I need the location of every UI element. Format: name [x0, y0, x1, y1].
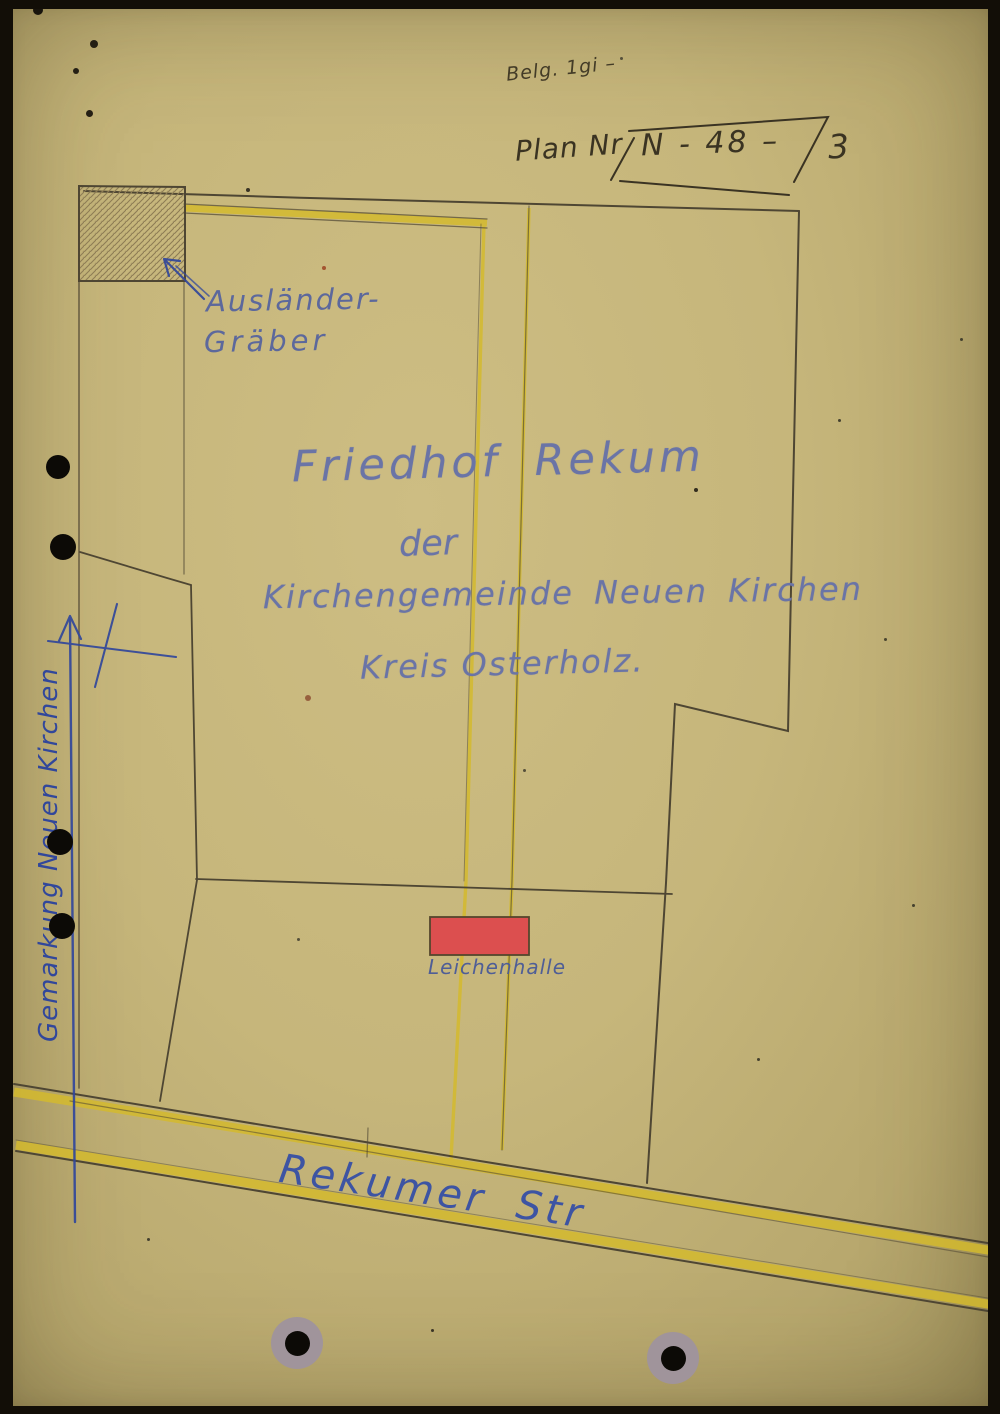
punch-hole	[50, 534, 76, 560]
scan-edge-top	[0, 0, 1000, 9]
scan-edge-left	[0, 0, 13, 1414]
paper-speck	[86, 110, 93, 117]
cemetery-boundary	[14, 186, 1000, 1313]
paper-speck	[912, 904, 915, 907]
paper-speck	[838, 419, 841, 422]
punch-hole	[49, 913, 75, 939]
plan-number-suffix: 3	[827, 126, 850, 166]
paper-speck	[431, 1329, 434, 1332]
paper-speck	[147, 1238, 150, 1241]
reinforced-punch-hole	[271, 1317, 323, 1369]
paper-speck	[73, 68, 79, 74]
punch-hole	[47, 829, 73, 855]
paper-speck	[322, 266, 326, 270]
plan-title-line4: Kreis Osterholz.	[360, 641, 645, 686]
scanned-cemetery-plan: Belg. 1gi – Plan Nr N - 48 – 3 Ausländer…	[0, 0, 1000, 1414]
paper-speck	[620, 57, 623, 60]
blue-ink-marks	[48, 259, 209, 1222]
paper-speck	[90, 40, 98, 48]
yellow-path-lines	[14, 208, 1000, 1306]
paper-speck	[246, 188, 250, 192]
punch-hole	[46, 455, 70, 479]
foreign-graves-label-line2: Gräber	[204, 323, 329, 359]
survey-cross-mark	[95, 604, 117, 687]
scan-edge-right	[988, 0, 1000, 1414]
mortuary-label: Leichenhalle	[428, 955, 566, 979]
paper-speck	[523, 769, 526, 772]
reinforced-punch-hole	[647, 1332, 699, 1384]
paper-speck	[694, 488, 698, 492]
paper-speck	[305, 695, 311, 701]
section-divider-line	[196, 879, 672, 894]
paper-speck	[960, 338, 963, 341]
scan-edge-bottom	[0, 1406, 1000, 1414]
paper-speck	[757, 1058, 760, 1061]
foreign-graves-label-line1: Ausländer-	[206, 281, 381, 318]
plan-number-value: N - 48 –	[640, 124, 780, 164]
paper-speck	[297, 938, 300, 941]
paper-speck	[884, 638, 887, 641]
plan-title-line2: der	[398, 523, 458, 565]
foreign-graves-hatched-area	[79, 186, 185, 281]
mortuary-building-rect	[430, 917, 529, 955]
